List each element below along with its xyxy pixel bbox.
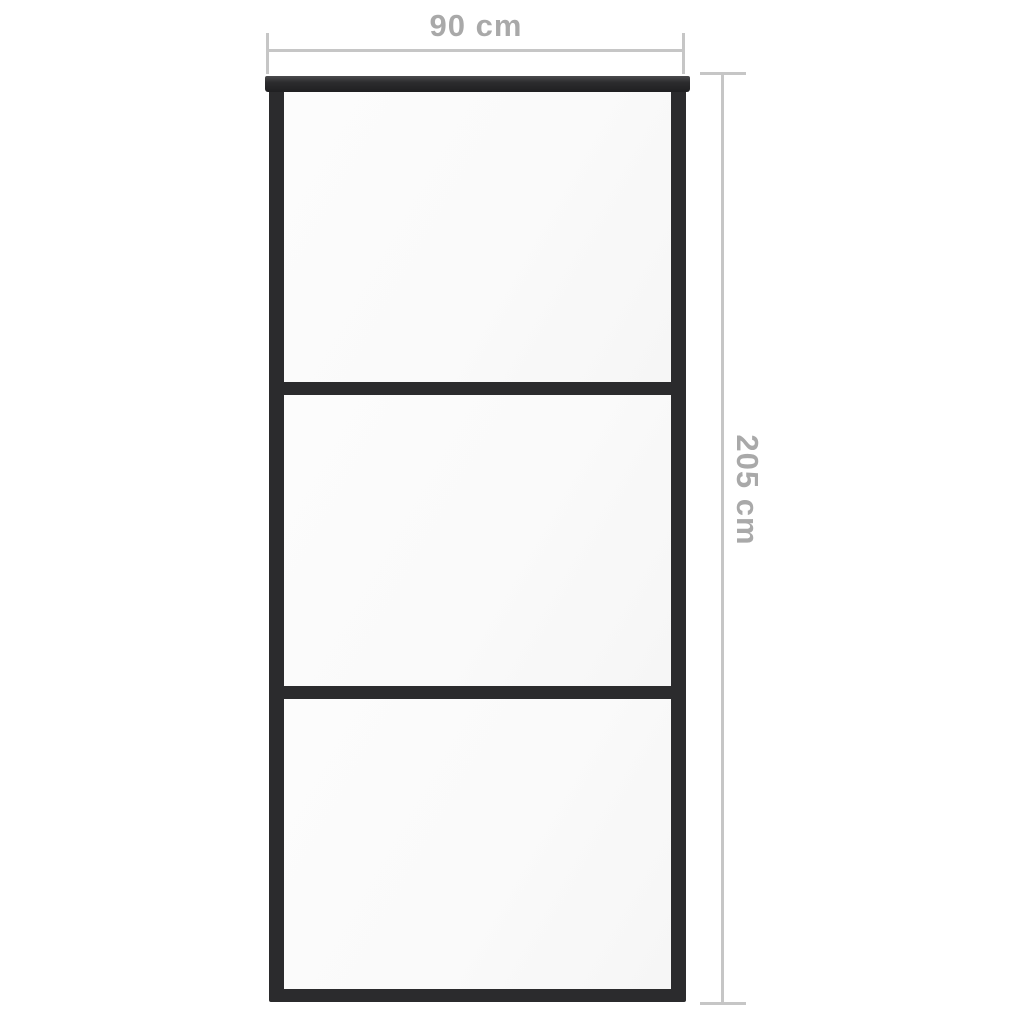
width-dimension-tick-right [682, 33, 685, 74]
product-dimension-diagram: 90 cm 205 cm [0, 0, 1024, 1024]
height-dimension-line [721, 73, 724, 1005]
height-dimension-tick-top [700, 72, 746, 75]
width-dimension-line [267, 49, 684, 52]
height-dimension-label: 205 cm [729, 434, 765, 545]
glass-panel [284, 92, 671, 382]
door-frame [269, 92, 686, 1002]
width-dimension-label: 90 cm [267, 8, 685, 44]
glass-panel [284, 395, 671, 685]
height-dimension-tick-bottom [700, 1002, 746, 1005]
door-top-rail [265, 76, 690, 92]
glass-panel [284, 699, 671, 989]
width-dimension-tick-left [266, 33, 269, 74]
